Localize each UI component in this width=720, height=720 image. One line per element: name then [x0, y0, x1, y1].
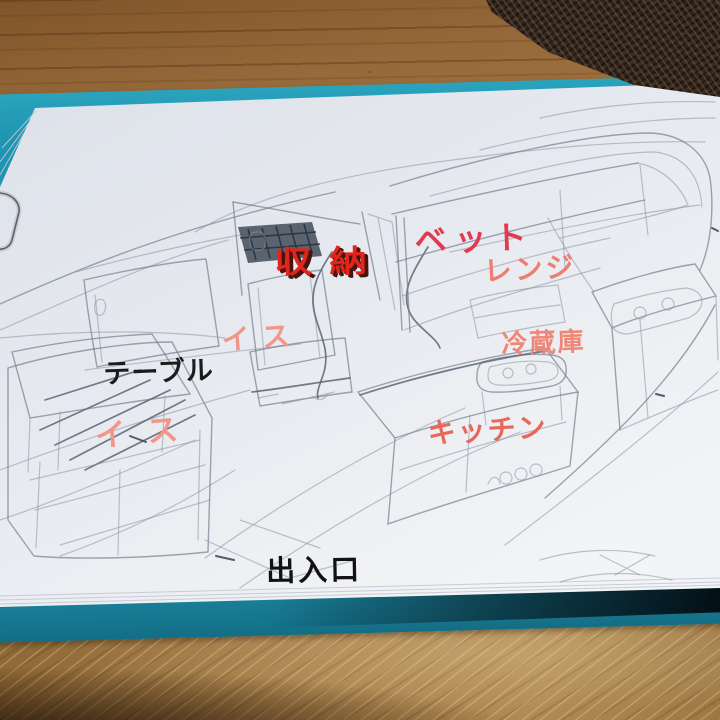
annotation-bed: ベット	[414, 221, 535, 257]
annotation-kitchen: キッチン	[427, 414, 548, 448]
photo-of-van-layout-sketch: { "scene": { "subject": "Hand-drawn camp…	[0, 0, 720, 720]
annotation-table: テーブル	[103, 357, 214, 388]
annotation-range: レンジ	[483, 253, 577, 286]
paper-sheet	[0, 84, 720, 607]
annotation-entrance: 出入口	[266, 555, 363, 586]
annotation-fridge: 冷蔵庫	[501, 329, 586, 358]
annotation-chair-lower: イス	[94, 413, 201, 453]
annotation-chair-upper: イス	[221, 321, 304, 355]
annotation-storage: 収納	[274, 246, 384, 279]
